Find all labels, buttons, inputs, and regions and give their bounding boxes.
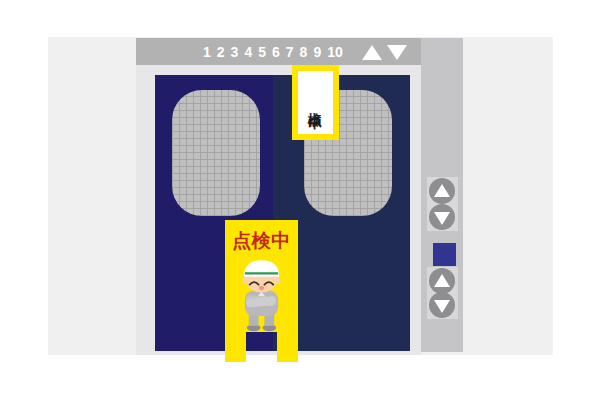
floor-number: 6 <box>269 44 283 60</box>
indicator-down-triangle-icon <box>387 45 407 60</box>
floor-sign-leg-right <box>277 332 298 362</box>
floor-number: 10 <box>324 44 346 60</box>
down-triangle-icon <box>434 300 450 313</box>
floor-number: 5 <box>255 44 269 60</box>
elevator-inspection-scene: 12345678910 点検中 点検中 <box>0 0 600 400</box>
up-triangle-icon <box>434 274 450 287</box>
maintenance-worker-icon <box>237 255 286 332</box>
call-button-up-2[interactable] <box>429 268 455 294</box>
floor-number: 4 <box>241 44 255 60</box>
floor-number: 7 <box>283 44 297 60</box>
floor-number-row: 12345678910 <box>200 38 346 65</box>
floor-number: 2 <box>214 44 228 60</box>
call-button-down-2[interactable] <box>429 292 455 318</box>
down-triangle-icon <box>434 212 450 225</box>
up-triangle-icon <box>434 184 450 197</box>
floor-sign-leg-left <box>225 332 246 362</box>
indicator-up-triangle-icon <box>362 45 382 60</box>
floor-number: 3 <box>228 44 242 60</box>
floor-number: 9 <box>310 44 324 60</box>
call-panel-blue-indicator <box>433 243 456 266</box>
door-inspection-sign-label: 点検中 <box>309 100 323 106</box>
floor-number: 8 <box>297 44 311 60</box>
call-button-down-1[interactable] <box>429 204 455 230</box>
floor-inspection-sign: 点検中 <box>225 220 298 362</box>
call-button-up-1[interactable] <box>429 178 455 204</box>
door-inspection-sign: 点検中 <box>292 65 339 140</box>
door-window-left <box>172 90 260 216</box>
floor-sign-label: 点検中 <box>225 228 298 254</box>
door-inspection-sign-inner: 点検中 <box>298 71 333 134</box>
floor-number: 1 <box>200 44 214 60</box>
